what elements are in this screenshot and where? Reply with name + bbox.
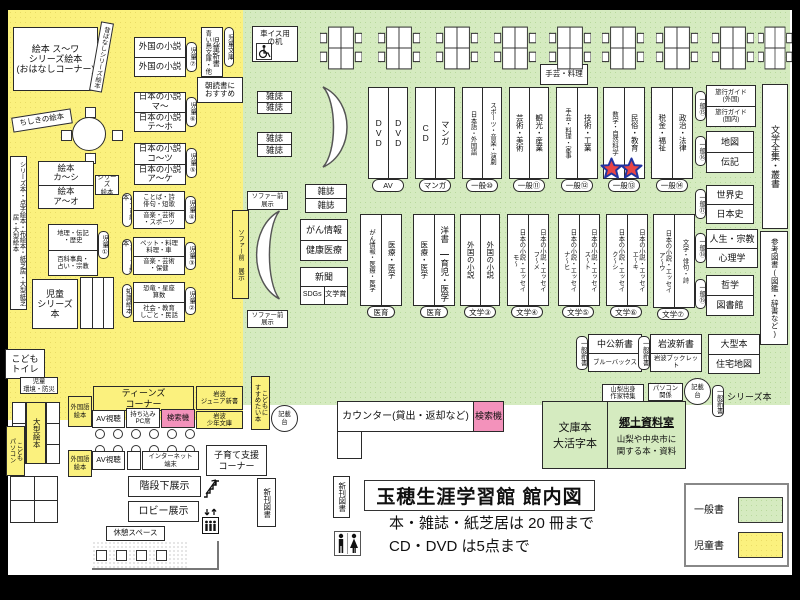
shelf-children-shinsho: 青い鳥文庫・他 児童新書 [201, 27, 223, 77]
literature-anthology-shelf: 文学全集・叢書 [762, 84, 788, 229]
shelf-jp-fiction-ma: 日本の小説 マ〜日本の小説 テ〜ホ [134, 92, 186, 132]
legend-general-label: 一般書 [694, 500, 734, 516]
magazine-shelf: 雑誌雑誌 [305, 184, 347, 213]
shelf-picturebooks-ka: 絵本 カ〜シ絵本 ア〜オ [38, 161, 94, 209]
library-floor-map: 絵本 ス〜ワ シリーズ絵本 (おはなしコーナー) 昔ばなしシリーズ絵本 ちしきの… [0, 0, 800, 600]
tag-ippan-17: 一般⑰ [695, 189, 706, 219]
shelf-jp-essay-na: 日本の小説・エッセイ ナ〜ヒ日本の小説・エッセイ ス〜ト [558, 214, 600, 306]
counter-leg [337, 431, 362, 459]
writing-stand: 記載 台 [684, 378, 711, 405]
av-booth: AV視聴 [92, 410, 125, 428]
sofa-front-display: ソファー前 展示 [247, 191, 288, 210]
byod-pc-seat: 持ち込み PC席 [126, 408, 160, 428]
shelf-pets-cooking: ペット・料理 料理・車音楽・芸術 ・保健 [133, 237, 185, 275]
legend-general-swatch [738, 497, 783, 523]
shelf-dinosaur-science: 恐竜・星座 算数社会・教育 しごと・民話 [133, 282, 185, 322]
shelf-jp-essay-a-poetry: 日本の小説・エッセイ ア〜ウ文学・俳句・詩 [653, 214, 695, 308]
childcare-medical-cell: 育児・医学 [440, 255, 449, 305]
tag-bungaku-7: 文学⑦ [657, 308, 689, 320]
shelf-tax-politics: 税金・福祉政治・法律 [651, 87, 693, 179]
new-books-shelf: 新刊図書 [257, 478, 276, 527]
shelf-foreign-fiction: 外国の小説外国の小説 [460, 214, 500, 306]
tag-ippan-10: 一般⑩ [466, 179, 498, 192]
shelf-jp-essay-mo: 日本の小説・エッセイ モ〜日本の小説・エッセイ フ〜メ [507, 214, 549, 306]
shelf-dvd: DVDDVD [368, 87, 408, 179]
tag-bungaku-6: 文学⑥ [610, 306, 642, 318]
tag-bungaku-5: 文学⑤ [562, 306, 594, 318]
tag-ippan-shinsho: 一般新書 [576, 336, 588, 370]
shelf-block [10, 476, 58, 523]
reading-table [602, 25, 644, 71]
reading-table [758, 25, 792, 71]
series-braille-bigbook-strip: シリーズ本・点字絵本・布絵本・紙芝居・大型紙芝居・大型絵本 [10, 156, 27, 310]
reading-table [320, 25, 362, 71]
shelf-philosophy-library: 哲学図書館 [706, 275, 754, 316]
tag-ippan-11: 一般⑪ [513, 179, 545, 192]
crescent-sofa [315, 85, 355, 169]
shelf-jp-essay-ku: 日本の小説・エッセイ ク〜シ日本の小説・エッセイ エ〜キ [606, 214, 648, 306]
jidou-shinsho-label: 児童新書 [211, 37, 219, 67]
internet-terminal: インターネット 端末 [142, 451, 199, 470]
tag-ippan-15: 一般⑮ [695, 91, 706, 121]
tag-ippan-shinsho-3: 一般新書 [712, 385, 724, 417]
kids-toilet: こども トイレ [5, 349, 45, 379]
tag-ippan-16: 一般⑯ [695, 136, 706, 166]
new-books-shelf-2: 新刊図書 [333, 476, 350, 518]
map-title: 玉穂生涯学習館 館内図 [364, 480, 595, 511]
local-history-title: 郷土資料室 [619, 414, 674, 430]
av-booth-2: AV視聴 [92, 451, 125, 470]
booth-seat [127, 451, 141, 470]
tag-series-ehon-2: シリーズ絵本 [122, 239, 132, 275]
shelf-large-books-housing-maps: 大型本住宅地図 [708, 334, 760, 374]
reading-table [494, 25, 536, 71]
sofa-front-display-strip: ソファー前 展示 [232, 210, 249, 299]
tag-manga: マンガ [419, 179, 451, 192]
childcare-support-corner: 子育て支援 コーナー [206, 445, 267, 476]
newspaper-shelf: 新聞 SDGs 文学賞 [300, 267, 348, 305]
under-stairs-display: 階段下展示 [128, 476, 201, 497]
shelf-maps-biography: 地図伝記 [706, 131, 754, 173]
tag-series-ehon: シリーズ 絵本 [95, 175, 119, 195]
tag-ippan-19: 一般⑲ [695, 279, 706, 309]
kids-computer: こども パソコン [6, 426, 25, 476]
star-marker-icon [620, 157, 643, 180]
stairs-icon [202, 474, 220, 499]
shelf-environment-disaster: 児童 環境・防災 [20, 377, 58, 394]
chair [85, 107, 96, 118]
children-series-shelf: 児童 シリーズ本 [32, 279, 78, 329]
tag-chishiki-ehon: 知識絵本 [122, 284, 132, 318]
legend-children-swatch [738, 532, 783, 558]
rest-space-label: 休憩スペース [106, 526, 165, 541]
search-terminal-counter: 検索機 [473, 401, 504, 432]
rest-space-area [92, 541, 219, 570]
elevator-icon [202, 508, 219, 535]
legend: 一般書 児童書 [684, 483, 789, 567]
restroom-icon [334, 531, 361, 556]
shelf-craft-technology: 手芸・料理・家事技術・工業 [556, 87, 598, 179]
iwanami-junior-shinsho: 岩波 ジュニア新書 [196, 386, 243, 410]
cancer-info-health-shelf: がん情報健康医療 [300, 219, 348, 261]
chair-row [95, 429, 199, 438]
shelf-cd-manga: CDマンガ [415, 87, 455, 179]
tag-asobi-ehon: あそび絵本 [122, 193, 132, 227]
tag-jidou-3: 児童③ [185, 242, 196, 270]
reading-table [656, 25, 698, 71]
tag-jidou-7: 児童⑦ [186, 42, 197, 72]
aoitori-label: 青い鳥文庫・他 [204, 30, 211, 74]
morning-reading-shelf: 朝読書に おすすめ [197, 77, 243, 103]
tag-ippan-13: 一般⑬ [608, 179, 640, 192]
storytelling-corner: 絵本 ス〜ワ シリーズ絵本 (おはなしコーナー) [13, 27, 98, 91]
tag-ippan-shinsho-2: 一般新書 [638, 336, 650, 370]
western-books-cell: 洋書 [440, 215, 449, 255]
magazine-shelf: 雑誌雑誌 [257, 132, 292, 157]
shelf-travel-guide: 旅行ガイド (外国)旅行ガイド (国内) [706, 85, 756, 127]
legend-children-label: 児童書 [694, 536, 734, 552]
series-books-label: シリーズ本 [727, 389, 773, 403]
chair [61, 130, 72, 141]
tag-bungaku-3: 文学③ [464, 306, 496, 318]
tag-medical-childcare: 医育 [367, 306, 395, 318]
shelf-cancer-medical: がん情報・医療・医学医療・医学 [360, 214, 402, 306]
reading-table [712, 25, 754, 71]
big-picturebook-shelf: 大型絵本 [26, 402, 46, 464]
tag-ippan-12: 一般⑫ [561, 179, 593, 192]
yamanashi-authors-display: 山梨出身 作家特集 [602, 384, 644, 402]
shelf-art-tourism: 芸術・美術観光・産業 [509, 87, 549, 179]
shelf-life-religion-psychology: 人生・宗教心理学 [706, 229, 758, 268]
crescent-sofa [249, 209, 287, 301]
literary-award-label: 文学賞 [324, 287, 348, 305]
shelf-world-japan-history: 世界史日本史 [706, 185, 754, 224]
borrowing-rule-media: CD・DVD は5点まで [389, 535, 639, 555]
shelf-medical-western: 医療・医学 洋書 育児・医学 [413, 214, 455, 306]
tag-jidou-1: 児童① [98, 231, 109, 259]
tag-medical-childcare-2: 医育 [420, 306, 448, 318]
shelf-block [46, 402, 60, 464]
search-terminal-teens: 検索機 [161, 409, 195, 428]
shelf-iwanami-shinsho: 岩波新書 岩波ブックレット [650, 334, 702, 372]
chair [112, 130, 123, 141]
tag-jidou-5: 児童⑤ [186, 148, 197, 178]
sofa-front-display: ソファー前 展示 [247, 310, 288, 328]
foreign-picturebook-tag: 外国語 絵本 [68, 396, 92, 427]
sdgs-label: SDGs [301, 291, 324, 299]
wheelchair-icon [256, 43, 272, 60]
computer-books-shelf: パソコン 関係 [648, 383, 683, 401]
writing-stand: 記載 台 [271, 405, 298, 432]
reference-books-shelf: 参考図書(図鑑・辞書など) [760, 231, 788, 345]
wheelchair-desk: 車イス用 の机 [252, 26, 298, 62]
service-counter: カウンター(貸出・返却など) [337, 401, 474, 432]
tag-jidou-bunko: 児童文庫 [224, 27, 234, 67]
tag-bungaku-4: 文学④ [511, 306, 543, 318]
magazine-shelf: 雑誌雑誌 [257, 91, 292, 114]
borrowing-rule-books: 本・雑誌・紙芝居は 20 冊まで [389, 512, 639, 532]
shelf-foreign-fiction-kids: 外国の小説外国の小説 [134, 37, 186, 77]
local-history-room: 郷土資料室 山梨や中央市に 関する本・資料 [607, 401, 686, 469]
tag-ippan-14: 一般⑭ [656, 179, 688, 192]
paperback-large-print-room: 文庫本 大活字本 [542, 401, 608, 469]
tag-jidou-6: 児童⑥ [186, 97, 197, 127]
reading-table [549, 25, 591, 71]
shelf-language-sports: 日本語・外国語スポーツ・音楽・演劇 [462, 87, 502, 179]
reading-table [436, 25, 478, 71]
lobby-display: ロビー展示 [128, 501, 199, 522]
tag-ippan-18: 一般⑱ [695, 233, 706, 263]
shelf-block [80, 277, 114, 329]
round-table [72, 117, 106, 151]
local-history-desc: 山梨や中央市に 関する本・資料 [617, 433, 677, 457]
reading-table [378, 25, 420, 71]
iwanami-shonen-bunko: 岩波 少年文庫 [196, 411, 243, 429]
tag-jidou-2: 児童② [185, 287, 196, 315]
shelf-geography-biography: 地理・伝記 ・歴史百科事典・ 占い・宗教 [48, 224, 98, 276]
tag-av: AV [372, 179, 404, 192]
shelf-jp-fiction-ko: 日本の小説 コ〜ツ日本の小説 ア〜ケ [134, 143, 186, 185]
tag-jidou-4: 児童④ [185, 196, 196, 224]
shelf-chuko-shinsho: 中公新書 ブルーバックス [588, 334, 642, 372]
recommended-for-kids-strip: こどもに すすめたい本 [251, 376, 270, 430]
shelf-language-poetry: ことば・詩 俳句・短歌音楽・芸術 ・スポーツ [133, 191, 185, 229]
foreign-picturebook-tag-2: 外国語 絵本 [68, 450, 92, 477]
